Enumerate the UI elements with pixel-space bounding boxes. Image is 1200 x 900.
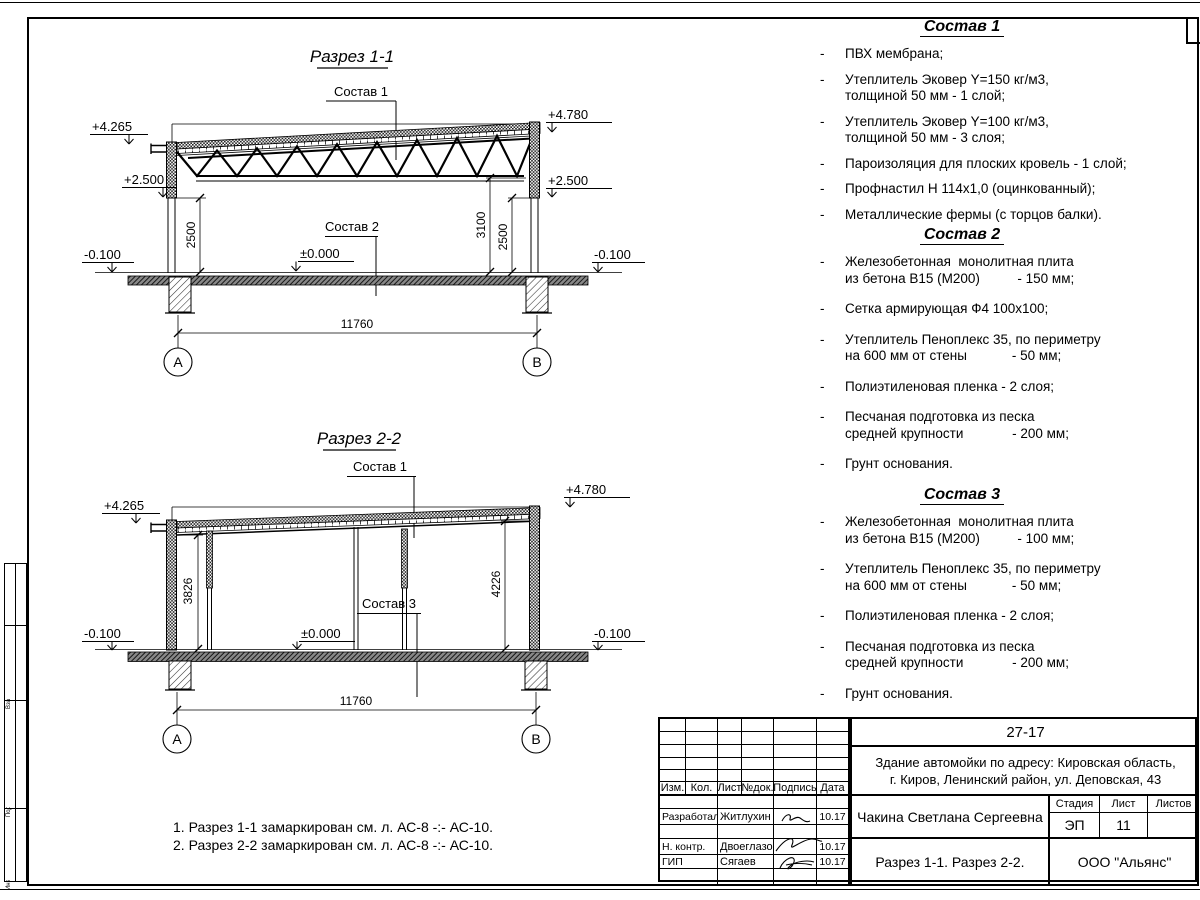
author-name: Чакина Светлана Сергеевна xyxy=(850,796,1050,839)
left-wall xyxy=(167,142,177,273)
col-izm: Изм. xyxy=(660,782,686,796)
col-data: Дата xyxy=(817,782,850,796)
interior-column-2 xyxy=(402,529,408,650)
drawing-name: Разрез 1-1. Разрез 2-2. xyxy=(850,839,1050,884)
svg-text:2500: 2500 xyxy=(496,223,510,250)
list-item: -Профнастил Н 114х1,0 (оцинкованный); xyxy=(812,181,1198,198)
list-item: -Полиэтиленовая пленка - 2 слоя; xyxy=(812,379,1198,396)
svg-text:В: В xyxy=(531,731,540,747)
svg-text:±0.000: ±0.000 xyxy=(301,626,341,641)
svg-text:+4.780: +4.780 xyxy=(566,482,606,497)
elev-zero: ±0.000 xyxy=(292,246,355,271)
dim-span-11760-2: 11760 xyxy=(173,692,540,725)
list-item: -Железобетонная монолитная плита из бето… xyxy=(812,514,1198,547)
name-developer: Житлухин xyxy=(718,809,774,825)
list-item: -ПВХ мембрана; xyxy=(812,46,1198,63)
svg-text:Состав 1: Состав 1 xyxy=(334,84,388,99)
svg-text:-0.100: -0.100 xyxy=(84,626,121,641)
list-item: -Песчаная подготовка из песка средней кр… xyxy=(812,639,1198,672)
footing-right-2 xyxy=(521,661,551,690)
col-ndoc: №док. xyxy=(742,782,774,796)
title-block: Изм. Кол. Лист №док. Подпись Дата Разраб… xyxy=(658,717,1197,882)
interior-column-1 xyxy=(207,531,213,650)
elev-4265-left: +4.265 xyxy=(90,119,148,144)
svg-text:+2.500: +2.500 xyxy=(124,172,164,187)
svg-text:±0.000: ±0.000 xyxy=(300,246,340,261)
outer-border-top xyxy=(0,2,1200,3)
date-developer: 10.17 xyxy=(817,809,850,825)
list-item: -Песчаная подготовка из песка средней кр… xyxy=(812,409,1198,442)
list-item: -Полиэтиленовая пленка - 2 слоя; xyxy=(812,608,1198,625)
section-1-1-drawing: Разрез 1-1 Состав 1 xyxy=(60,40,660,395)
elev-minus100-left-2: -0.100 xyxy=(82,626,134,650)
date-gip: 10.17 xyxy=(817,855,850,869)
right-wall xyxy=(530,122,540,273)
list-item: -Сетка армирующая Ф4 100х100; xyxy=(812,301,1198,318)
svg-text:Состав 1: Состав 1 xyxy=(353,459,407,474)
doc-number: 27-17 xyxy=(850,719,1199,747)
name-gip: Сягаев xyxy=(718,855,774,869)
section1-title: Разрез 1-1 xyxy=(310,47,394,66)
svg-text:+4.780: +4.780 xyxy=(548,107,588,122)
sheets-label: Листов xyxy=(1148,796,1199,813)
elev-2500-right: +2.500 xyxy=(546,173,612,197)
stage-value: ЭП xyxy=(1050,813,1100,839)
list-item: -Грунт основания. xyxy=(812,686,1198,703)
footing-left-2 xyxy=(165,661,195,690)
axis-marker-a-2: А xyxy=(163,725,191,753)
footing-right xyxy=(522,277,552,313)
col-podpis: Подпись xyxy=(774,782,817,796)
elev-4780-right-2: +4.780 xyxy=(564,482,630,507)
floor-slab-2 xyxy=(95,650,622,662)
composition-3-heading: Состав 3 xyxy=(812,486,1112,504)
outer-border-bottom xyxy=(0,889,1200,890)
svg-text:3100: 3100 xyxy=(474,211,488,238)
elev-minus100-right: -0.100 xyxy=(592,247,645,272)
sheets-total xyxy=(1148,813,1199,839)
section2-sostav3-callout: Состав 3 xyxy=(357,596,421,697)
axis-marker-b: В xyxy=(523,348,551,376)
dim-4226-right: 4226 xyxy=(489,517,529,653)
elev-4780-right: +4.780 xyxy=(546,107,612,132)
svg-text:+2.500: +2.500 xyxy=(548,173,588,188)
role-ncontrol: Н. контр. xyxy=(660,839,718,855)
signature-developer xyxy=(776,809,816,827)
composition-2-heading: Состав 2 xyxy=(812,226,1112,244)
svg-text:2500: 2500 xyxy=(184,221,198,248)
col-list: Лист xyxy=(718,782,742,796)
composition-1-heading: Состав 1 xyxy=(812,18,1112,36)
svg-text:А: А xyxy=(173,354,183,370)
svg-text:11760: 11760 xyxy=(340,694,373,708)
roof-slab xyxy=(177,123,540,156)
svg-text:-0.100: -0.100 xyxy=(594,626,631,641)
list-item: -Утеплитель Пеноплекс 35, по периметру н… xyxy=(812,332,1198,365)
list-item: -Пароизоляция для плоских кровель - 1 сл… xyxy=(812,156,1198,173)
interior-partition xyxy=(354,527,358,650)
signature-gip xyxy=(774,852,820,874)
side-stamp: Взам. инв. № Подп. и дата Инв. № подл. xyxy=(4,563,27,882)
svg-text:А: А xyxy=(172,731,182,747)
section-2-2-drawing: Разрез 2-2 Состав 1 xyxy=(60,425,660,770)
col-kol: Кол. xyxy=(686,782,718,796)
dim-2500-left: 2500 xyxy=(177,194,206,276)
dim-2500-right: 2500 xyxy=(496,194,540,276)
composition-list-3: Состав 3 -Железобетонная монолитная плит… xyxy=(812,486,1198,716)
left-wall-2 xyxy=(167,520,177,650)
elev-minus100-left: -0.100 xyxy=(82,247,134,272)
svg-text:Состав 2: Состав 2 xyxy=(325,219,379,234)
list-item: -Грунт основания. xyxy=(812,456,1198,473)
svg-text:-0.100: -0.100 xyxy=(84,247,121,262)
sheet-number: 11 xyxy=(1100,813,1148,839)
elev-zero-2: ±0.000 xyxy=(293,626,356,649)
footing-left xyxy=(165,277,195,313)
name-ncontrol: Двоеглазов xyxy=(718,839,774,855)
note-line-1: 1. Разрез 1-1 замаркирован см. л. АС-8 -… xyxy=(173,818,493,836)
right-wall-2 xyxy=(530,506,540,650)
role-developer: Разработал xyxy=(660,809,718,825)
list-item: -Металлические фермы (с торцов балки). xyxy=(812,207,1198,224)
axis-marker-b-2: В xyxy=(522,725,550,753)
project-name: Здание автомойки по адресу: Кировская об… xyxy=(850,747,1199,796)
svg-text:В: В xyxy=(532,354,541,370)
project-line-1: Здание автомойки по адресу: Кировская об… xyxy=(875,754,1175,771)
list-item: -Железобетонная монолитная плита из бето… xyxy=(812,254,1198,287)
section2-title: Разрез 2-2 xyxy=(317,429,402,448)
dim-3826-left: 3826 xyxy=(177,531,203,653)
svg-text:+4.265: +4.265 xyxy=(104,498,144,513)
svg-text:11760: 11760 xyxy=(341,317,374,331)
svg-text:4226: 4226 xyxy=(489,570,503,597)
sheet-notes: 1. Разрез 1-1 замаркирован см. л. АС-8 -… xyxy=(173,818,493,854)
svg-text:Состав 3: Состав 3 xyxy=(362,596,416,611)
list-item: -Утеплитель Эковер Y=100 кг/м3, толщиной… xyxy=(812,114,1198,147)
elev-minus100-right-2: -0.100 xyxy=(592,626,645,650)
composition-list-2: Состав 2 -Железобетонная монолитная плит… xyxy=(812,226,1198,487)
drawing-sheet: Взам. инв. № Подп. и дата Инв. № подл. xyxy=(0,0,1200,900)
sheet-label: Лист xyxy=(1100,796,1148,813)
company-name: ООО "Альянс" xyxy=(1050,839,1199,884)
svg-text:3826: 3826 xyxy=(181,577,195,604)
svg-text:+4.265: +4.265 xyxy=(92,119,132,134)
role-gip: ГИП xyxy=(660,855,718,869)
axis-marker-a: А xyxy=(164,348,192,376)
svg-text:-0.100: -0.100 xyxy=(594,247,631,262)
stage-label: Стадия xyxy=(1050,796,1100,813)
composition-list-1: Состав 1 -ПВХ мембрана; -Утеплитель Эков… xyxy=(812,18,1198,232)
note-line-2: 2. Разрез 2-2 замаркирован см. л. АС-8 -… xyxy=(173,836,493,854)
list-item: -Утеплитель Пеноплекс 35, по периметру н… xyxy=(812,561,1198,594)
dim-span-11760: 11760 xyxy=(174,315,541,348)
project-line-2: г. Киров, Ленинский район, ул. Деповская… xyxy=(890,771,1161,788)
elev-4265-left-2: +4.265 xyxy=(102,498,160,523)
list-item: -Утеплитель Эковер Y=150 кг/м3, толщиной… xyxy=(812,72,1198,105)
side-stamp-label-3: Инв. № подл. xyxy=(4,880,14,890)
